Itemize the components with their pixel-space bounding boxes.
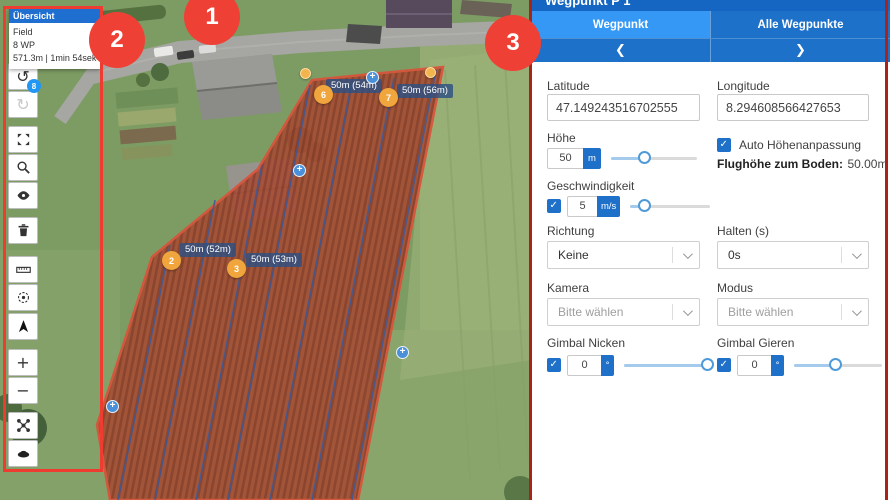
ground-altitude-value: 50.00m	[847, 157, 887, 171]
overview-waypoint-count: 8 WP	[13, 39, 97, 52]
tab-alle-wegpunkte[interactable]: Alle Wegpunkte	[710, 11, 890, 38]
latitude-input[interactable]	[547, 94, 700, 121]
zoom-in-button[interactable]: +	[8, 349, 38, 376]
altitude-input[interactable]	[547, 148, 583, 169]
gimbal-yaw-slider[interactable]	[794, 358, 882, 372]
gimbal-yaw-label: Gimbal Gieren	[717, 336, 794, 350]
waypoint-marker[interactable]: 3	[227, 259, 246, 278]
waypoint-marker[interactable]: 2	[162, 251, 181, 270]
insert-waypoint-icon[interactable]: +	[293, 164, 306, 177]
waypoint-label: 50m (52m)	[180, 243, 236, 257]
plus-icon: +	[16, 353, 29, 372]
ruler-icon	[15, 261, 32, 278]
chevron-down-icon	[673, 252, 699, 259]
longitude-label: Longitude	[717, 79, 770, 93]
minus-icon: −	[16, 381, 29, 400]
latitude-label: Latitude	[547, 79, 590, 93]
insert-waypoint-icon[interactable]: +	[366, 71, 379, 84]
insert-waypoint-icon[interactable]: +	[396, 346, 409, 359]
drone-position-button[interactable]	[8, 412, 38, 439]
speed-checkbox[interactable]	[547, 199, 561, 213]
ground-altitude-label: Flughöhe zum Boden:	[717, 157, 843, 171]
gimbal-yaw-checkbox[interactable]	[717, 358, 731, 372]
waypoint-label: 50m (56m)	[397, 84, 453, 98]
search-button[interactable]	[8, 154, 38, 181]
tab-wegpunkt[interactable]: Wegpunkt	[531, 11, 710, 38]
gimbal-yaw-unit-chip: °	[771, 355, 784, 376]
undo-count-badge: 8	[27, 79, 41, 93]
expand-icon	[15, 131, 32, 148]
waypoint-marker[interactable]: 7	[379, 88, 398, 107]
zoom-out-button[interactable]: −	[8, 377, 38, 404]
waypoint-label: 50m (53m)	[246, 253, 302, 267]
speed-input[interactable]	[567, 196, 597, 217]
auto-altitude-checkbox[interactable]	[717, 138, 731, 152]
prev-waypoint-button[interactable]: ❮	[531, 39, 710, 62]
altitude-label: Höhe	[547, 131, 576, 145]
redo-button[interactable]: ↻	[8, 91, 38, 118]
overview-title: Übersicht	[9, 9, 101, 23]
delete-button[interactable]	[8, 217, 38, 244]
hold-select[interactable]: 0s	[717, 241, 869, 269]
center-target-button[interactable]	[8, 284, 38, 311]
mode-label: Modus	[717, 281, 753, 295]
panel-title: Wegpunkt P 1	[531, 0, 890, 11]
altitude-unit-chip: m	[583, 148, 601, 169]
compass-button[interactable]	[8, 313, 38, 340]
layers-icon	[15, 445, 32, 462]
drone-icon	[15, 417, 32, 434]
gimbal-pitch-label: Gimbal Nicken	[547, 336, 625, 350]
target-icon	[15, 289, 32, 306]
gimbal-pitch-slider[interactable]	[624, 358, 712, 372]
chevron-down-icon	[673, 309, 699, 316]
navigation-arrow-icon	[15, 318, 32, 335]
ground-altitude-row: Flughöhe zum Boden: 50.00m	[717, 155, 887, 173]
map-canvas[interactable]: 50m (52m) 50m (53m) 50m (54m) 50m (56m) …	[0, 0, 531, 500]
trash-icon	[15, 222, 32, 239]
speed-label: Geschwindigkeit	[547, 179, 634, 193]
camera-label: Kamera	[547, 281, 589, 295]
search-icon	[15, 159, 32, 176]
waypoint-dot[interactable]	[425, 67, 436, 78]
visibility-button[interactable]	[8, 182, 38, 209]
gimbal-pitch-checkbox[interactable]	[547, 358, 561, 372]
waypoint-dot[interactable]	[300, 68, 311, 79]
app-window: 50m (52m) 50m (53m) 50m (54m) 50m (56m) …	[0, 0, 890, 500]
waypoint-panel: Wegpunkt P 1 Wegpunkt Alle Wegpunkte ❮ ❯…	[531, 0, 890, 500]
waypoint-marker[interactable]: 6	[314, 85, 333, 104]
eye-icon	[15, 187, 32, 204]
map-mode-button[interactable]	[8, 440, 38, 467]
speed-unit-chip: m/s	[597, 196, 620, 217]
mission-overview-card: Übersicht Field 8 WP 571.3m | 1min 54sek	[9, 9, 101, 69]
hold-label: Halten (s)	[717, 224, 769, 238]
gimbal-pitch-unit-chip: °	[601, 355, 614, 376]
overview-field-name: Field	[13, 26, 97, 39]
overview-mission-stats: 571.3m | 1min 54sek	[13, 52, 97, 65]
waypoint-pager: ❮ ❯	[531, 38, 890, 62]
chevron-down-icon	[842, 309, 868, 316]
fullscreen-button[interactable]	[8, 126, 38, 153]
redo-icon: ↻	[16, 95, 29, 114]
chevron-right-icon: ❯	[795, 43, 806, 58]
mode-select[interactable]: Bitte wählen	[717, 298, 869, 326]
camera-select[interactable]: Bitte wählen	[547, 298, 700, 326]
longitude-input[interactable]	[717, 94, 869, 121]
direction-select[interactable]: Keine	[547, 241, 700, 269]
chevron-left-icon: ❮	[615, 43, 626, 58]
measure-button[interactable]	[8, 256, 38, 283]
next-waypoint-button[interactable]: ❯	[710, 39, 890, 62]
gimbal-yaw-input[interactable]	[737, 355, 771, 376]
panel-tabs: Wegpunkt Alle Wegpunkte	[531, 11, 890, 38]
direction-label: Richtung	[547, 224, 594, 238]
auto-altitude-label: Auto Höhenanpassung	[739, 138, 861, 152]
gimbal-pitch-input[interactable]	[567, 355, 601, 376]
aerial-imagery	[0, 0, 531, 500]
altitude-slider[interactable]	[611, 151, 697, 165]
chevron-down-icon	[842, 252, 868, 259]
insert-waypoint-icon[interactable]: +	[106, 400, 119, 413]
speed-slider[interactable]	[630, 199, 710, 213]
